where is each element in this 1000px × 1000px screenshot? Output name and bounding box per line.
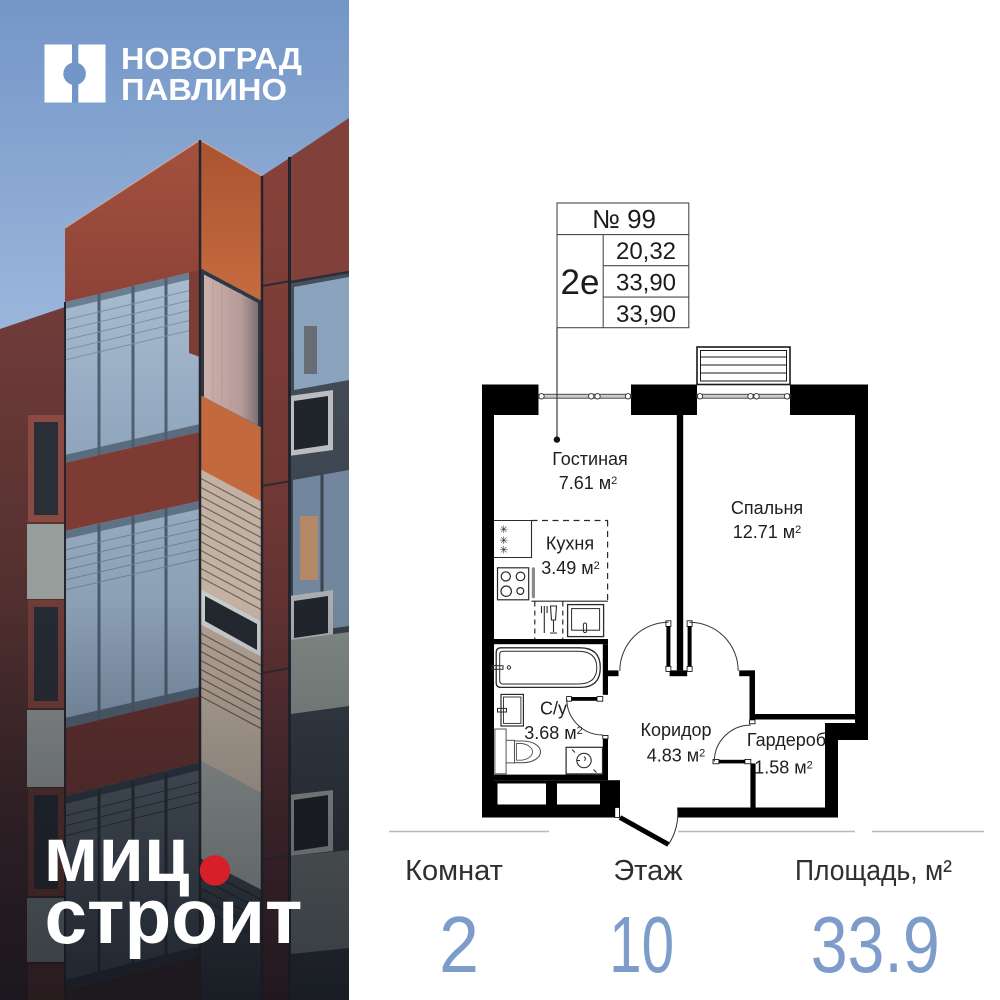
svg-text:12.71 м2: 12.71 м2: [733, 522, 802, 542]
svg-text:1.58 м2: 1.58 м2: [754, 758, 813, 778]
svg-text:33,90: 33,90: [616, 270, 676, 297]
svg-text:Коридор: Коридор: [640, 720, 711, 740]
svg-text:7.61 м2: 7.61 м2: [559, 473, 618, 493]
svg-text:НОВОГРАД: НОВОГРАД: [121, 42, 302, 76]
svg-text:3.68 м2: 3.68 м2: [524, 723, 583, 743]
svg-text:строит: строит: [45, 872, 303, 960]
svg-text:Кухня: Кухня: [546, 534, 594, 554]
svg-text:Гостиная: Гостиная: [552, 449, 628, 469]
svg-text:2е: 2е: [561, 263, 600, 302]
svg-text:Площадь, м²: Площадь, м²: [795, 855, 952, 887]
svg-text:20,32: 20,32: [616, 238, 676, 265]
svg-text:2: 2: [439, 900, 479, 989]
svg-text:Спальня: Спальня: [731, 498, 803, 518]
svg-text:✳: ✳: [499, 545, 508, 557]
svg-text:ПАВЛИНО: ПАВЛИНО: [121, 73, 287, 107]
svg-text:4.83 м2: 4.83 м2: [647, 746, 706, 766]
svg-text:Комнат: Комнат: [405, 855, 503, 887]
svg-text:№ 99: № 99: [592, 204, 656, 234]
svg-text:10: 10: [609, 900, 674, 989]
svg-text:33,90: 33,90: [616, 301, 676, 328]
svg-text:3.49 м2: 3.49 м2: [541, 558, 600, 578]
svg-text:С/у: С/у: [540, 699, 567, 719]
svg-text:Гардероб: Гардероб: [747, 730, 826, 750]
svg-text:Этаж: Этаж: [613, 855, 683, 887]
svg-text:33.9: 33.9: [811, 900, 940, 989]
